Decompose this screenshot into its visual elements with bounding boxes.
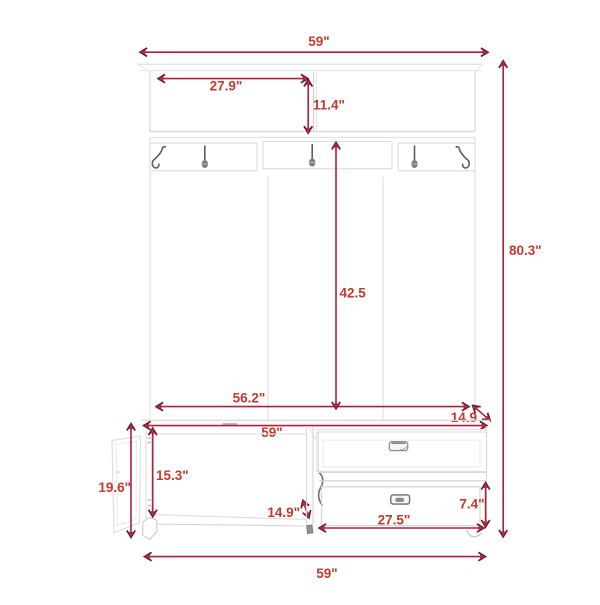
svg-text:11.4": 11.4": [313, 98, 345, 113]
svg-text:7.4": 7.4": [459, 497, 484, 512]
svg-text:14.9": 14.9": [267, 505, 300, 520]
svg-text:27.5": 27.5": [378, 513, 411, 528]
svg-text:27.9": 27.9": [210, 79, 243, 94]
svg-text:15.3": 15.3": [156, 468, 189, 483]
svg-text:14.9: 14.9: [451, 410, 477, 425]
svg-text:19.6": 19.6": [98, 480, 131, 495]
svg-text:59": 59": [261, 425, 282, 440]
svg-text:59": 59": [308, 34, 329, 49]
svg-text:59": 59": [316, 566, 337, 581]
svg-text:42.5: 42.5: [340, 286, 367, 301]
svg-text:80.3": 80.3": [509, 243, 542, 258]
svg-text:56.2": 56.2": [233, 391, 266, 406]
